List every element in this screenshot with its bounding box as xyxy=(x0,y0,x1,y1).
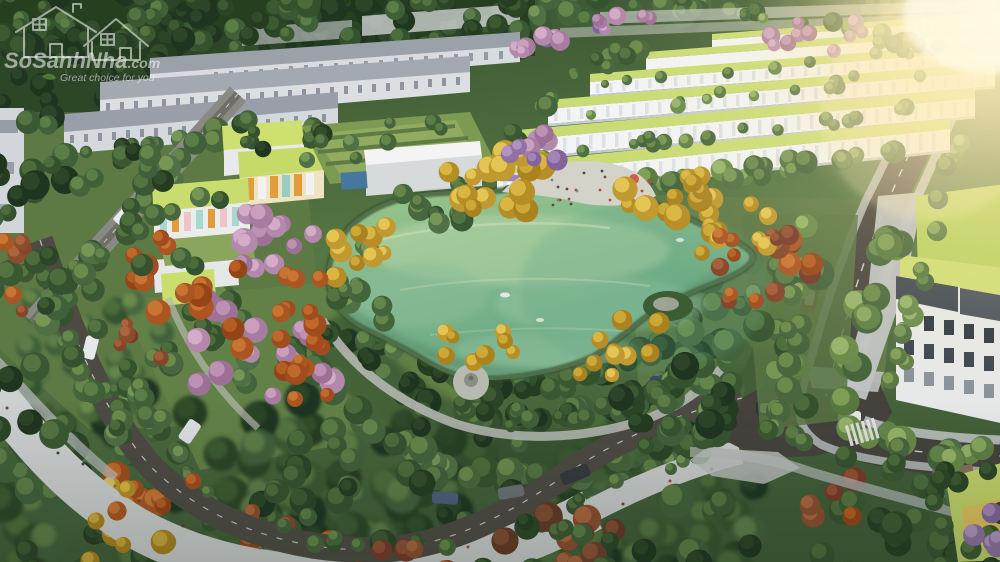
svg-text:Great choice for you: Great choice for you xyxy=(60,72,155,84)
